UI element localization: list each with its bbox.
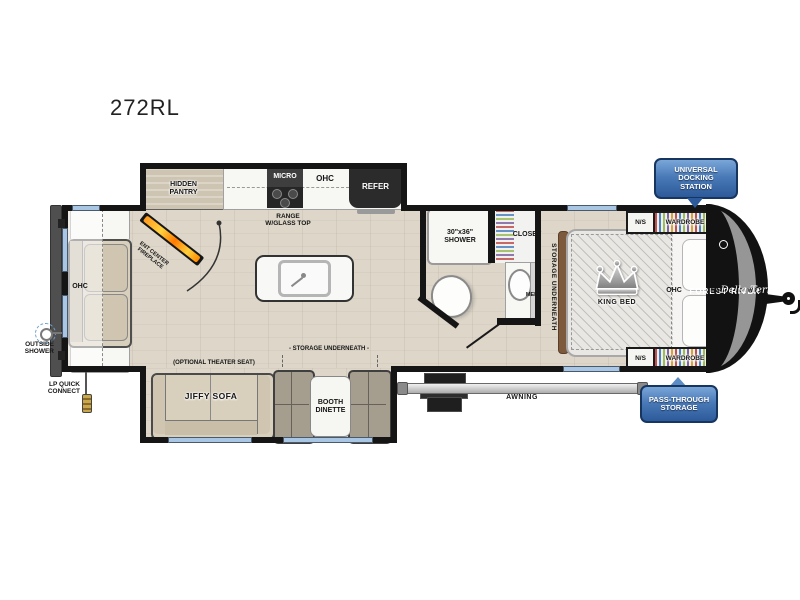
window-bedroom-top	[567, 205, 617, 211]
wall-vanity-bottom	[497, 318, 541, 325]
wall-bath-left	[420, 205, 426, 300]
theater-seat-note: (OPTIONAL THEATER SEAT)	[148, 360, 280, 367]
kitchen-island	[255, 255, 354, 302]
wall-door-slide-left	[140, 366, 146, 443]
sofa-backrest	[165, 420, 257, 435]
wall-closet-right	[535, 205, 541, 326]
refer-handle	[357, 209, 395, 214]
outside-shower-label: OUTSIDE SHOWER	[2, 341, 54, 356]
hidden-pantry: HIDDEN PANTRY	[142, 167, 225, 210]
bench-seam	[275, 404, 309, 405]
wall-bottom-rear	[62, 366, 146, 372]
king-bed-label: KING BED	[577, 299, 657, 307]
awning-label: AWNING	[492, 394, 552, 402]
shower: 30"x36" SHOWER	[427, 208, 493, 265]
dinette-bench-left	[273, 370, 315, 444]
shower-head-icon	[40, 328, 53, 341]
jiffy-sofa: JIFFY SOFA	[151, 373, 275, 440]
nightstand-top: N/S	[626, 211, 655, 234]
awning-rail	[398, 383, 648, 394]
refer-label: REFER	[362, 183, 389, 192]
burner-icon	[280, 198, 290, 208]
awning-end-cap	[397, 382, 408, 395]
window-bedroom-bottom	[563, 366, 620, 372]
tv-swing-arc	[182, 216, 226, 298]
wardrobe-top-label: WARDROBE	[666, 219, 705, 226]
kitchen-ohc-label: OHC	[303, 170, 347, 188]
docking-badge-shield: UNIVERSAL DOCKING STATION	[654, 158, 738, 199]
window-rear-top	[72, 205, 100, 211]
dinette-bench-right	[348, 370, 392, 444]
hitch-jack-icon	[790, 300, 800, 314]
jiffy-sofa-label: JIFFY SOFA	[161, 389, 261, 405]
range-burners	[267, 187, 303, 208]
wall-kitchen-slide-left	[140, 163, 146, 211]
pass-badge-body: PASS-THROUGH STORAGE	[640, 385, 718, 423]
step	[427, 397, 462, 412]
pass-through-badge: PASS-THROUGH STORAGE	[640, 377, 718, 423]
wall-bottom-main	[391, 366, 712, 372]
window-rear-wall-upper	[62, 228, 68, 272]
hidden-pantry-label: HIDDEN PANTRY	[143, 168, 224, 209]
ns-bottom-label: N/S	[635, 355, 646, 362]
bench-seam	[291, 372, 292, 438]
wardrobe-bottom-label: WARDROBE	[666, 355, 705, 362]
range-label: RANGE W/GLASS TOP	[248, 213, 328, 228]
dinette-storage-label: - STORAGE UNDERNEATH -	[276, 346, 382, 353]
window-rear-wall-lower	[62, 295, 68, 338]
closet-label: CLOSET	[507, 229, 547, 241]
ns-top-label: N/S	[635, 219, 646, 226]
bumper-arm-bottom	[58, 351, 65, 360]
lp-connector-icon	[82, 394, 92, 413]
burner-icon	[272, 189, 282, 199]
rear-sofa-ohc-label: OHC	[64, 281, 96, 293]
bench-seam	[368, 372, 369, 438]
wall-kitchen-slide-right	[401, 163, 407, 211]
dinette-storage-dash-left	[282, 355, 283, 367]
wall-door-slide-right	[391, 366, 397, 443]
wall-kitchen-slide-top	[140, 163, 407, 169]
page-title: 272RL	[110, 95, 180, 121]
window-sofa-slide	[168, 437, 252, 443]
dinette-storage-dash-right	[377, 355, 378, 367]
booth-dinette-label: BOOTH DINETTE	[316, 399, 346, 415]
pass-badge-label: PASS-THROUGH STORAGE	[649, 396, 709, 413]
docking-badge-pointer	[687, 198, 703, 208]
bumper-arm-top	[58, 219, 65, 228]
docking-station-badge: UNIVERSAL DOCKING STATION	[654, 158, 738, 210]
crown-icon	[590, 259, 644, 299]
lp-connect-line	[85, 372, 87, 396]
floorplan-page: 272RL OUTSIDE SHOWER LP QUICK CONNECT OH…	[0, 0, 800, 600]
island-sink	[278, 260, 331, 297]
della-terra-label: Della Terra	[704, 283, 794, 297]
shower-label: 30"x36" SHOWER	[444, 229, 476, 245]
lp-quick-connect-label: LP QUICK CONNECT	[28, 381, 80, 396]
hitch-coupler-hole	[787, 297, 790, 300]
microwave: MICRO	[267, 166, 303, 187]
window-dinette-slide	[283, 437, 373, 443]
brand-emblem-icon	[719, 240, 728, 249]
docking-badge-label: UNIVERSAL DOCKING STATION	[674, 166, 717, 191]
refrigerator: REFER	[349, 166, 402, 208]
bedroom-storage-label: STORAGE UNDERNEATH	[547, 237, 559, 337]
wall-shower-closet	[488, 205, 495, 263]
micro-label: MICRO	[273, 173, 296, 181]
dinette-table: BOOTH DINETTE	[310, 376, 351, 437]
burner-icon	[288, 189, 298, 199]
